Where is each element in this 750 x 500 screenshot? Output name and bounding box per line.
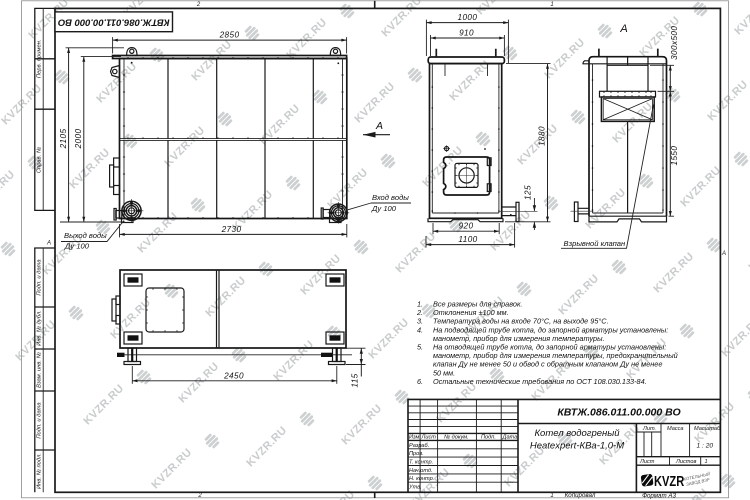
svg-text:Копировал: Копировал (565, 492, 596, 499)
svg-text:KVZR.RU: KVZR.RU (746, 228, 750, 273)
svg-text:KVZR.RU: KVZR.RU (0, 168, 17, 213)
svg-text:2000: 2000 (74, 129, 83, 150)
svg-text:KVZR.RU: KVZR.RU (719, 314, 750, 359)
svg-text:KVZR.RU: KVZR.RU (705, 78, 750, 123)
svg-text:2105: 2105 (59, 129, 68, 150)
svg-text:Лист: Лист (639, 459, 655, 465)
svg-text:Остальные технические требован: Остальные технические требования по ОСТ … (433, 377, 647, 386)
svg-text:KVZR.RU: KVZR.RU (176, 360, 221, 405)
svg-text:А: А (375, 120, 383, 132)
svg-text:910: 910 (459, 29, 474, 38)
svg-text:1100: 1100 (458, 235, 477, 244)
svg-text:Взам. инв. №: Взам. инв. № (37, 352, 43, 388)
svg-text:Взрывной клапан: Взрывной клапан (564, 239, 627, 248)
svg-text:Ду 100: Ду 100 (64, 242, 90, 251)
svg-text:№ докум.: № докум. (444, 435, 469, 441)
svg-text:Листов: Листов (675, 459, 696, 465)
svg-text:Инв. № дубл.: Инв. № дубл. (37, 310, 43, 346)
svg-text:Нач.отд.: Нач.отд. (409, 468, 433, 474)
svg-text:2: 2 (196, 2, 201, 8)
svg-text:КВТЖ.086.011.00.000 ВО: КВТЖ.086.011.00.000 ВО (57, 16, 169, 27)
svg-text:Выход воды: Выход воды (64, 231, 107, 240)
svg-text:Разраб.: Разраб. (409, 443, 429, 449)
svg-text:КВТЖ.086.011.00.000 ВО: КВТЖ.086.011.00.000 ВО (557, 406, 680, 418)
svg-text:Вход воды: Вход воды (372, 193, 409, 202)
svg-text:Котел водогреный: Котел водогреный (534, 428, 620, 439)
svg-text:920: 920 (459, 222, 474, 231)
svg-text:Heatexpert-КВа-1,0-М: Heatexpert-КВа-1,0-М (530, 441, 624, 452)
svg-text:KVZR.RU: KVZR.RU (298, 252, 343, 297)
svg-text:1880: 1880 (538, 126, 547, 146)
svg-text:2730: 2730 (221, 225, 242, 234)
svg-text:1550: 1550 (670, 146, 679, 166)
svg-text:Инв. № подл.: Инв. № подл. (37, 453, 43, 489)
svg-text:KVZR.RU: KVZR.RU (651, 250, 696, 295)
svg-text:Подп. и дата: Подп. и дата (37, 259, 43, 296)
svg-text:KVZR.RU: KVZR.RU (542, 36, 587, 81)
svg-text:4.: 4. (417, 325, 423, 334)
svg-text:Т. контр.: Т. контр. (409, 460, 433, 466)
svg-text:2850: 2850 (219, 30, 240, 39)
svg-text:KVZR: KVZR (654, 473, 685, 490)
svg-text:KVZR.RU: KVZR.RU (434, 380, 479, 425)
svg-text:KVZR.RU: KVZR.RU (678, 164, 723, 209)
svg-text:Масштаб: Масштаб (694, 426, 721, 432)
svg-text:2: 2 (197, 493, 202, 499)
svg-text:Утв.: Утв. (408, 485, 422, 491)
svg-text:Перв. примен.: Перв. примен. (37, 40, 43, 79)
svg-text:2450: 2450 (223, 371, 244, 380)
svg-text:1: 1 (550, 2, 553, 8)
svg-text:6.: 6. (417, 377, 423, 386)
svg-text:KVZR.RU: KVZR.RU (447, 58, 492, 103)
svg-text:KVZR.RU: KVZR.RU (149, 446, 194, 491)
svg-text:125: 125 (524, 185, 533, 200)
svg-text:KVZR.RU: KVZR.RU (81, 382, 126, 427)
svg-text:KVZR.RU: KVZR.RU (108, 296, 153, 341)
svg-text:KVZR.RU: KVZR.RU (189, 38, 234, 83)
svg-text:KVZR.RU: KVZR.RU (203, 274, 248, 319)
svg-text:Масса: Масса (667, 426, 684, 432)
svg-text:KVZR.RU: KVZR.RU (339, 402, 384, 447)
svg-text:KVZR.RU: KVZR.RU (556, 272, 601, 317)
svg-text:клапан Ду не менее 50 и обвод: клапан Ду не менее 50 и обвод с обратным… (433, 360, 662, 369)
svg-text:1 : 20: 1 : 20 (697, 442, 714, 449)
svg-text:Подп. и дата: Подп. и дата (37, 402, 43, 439)
svg-text:115: 115 (351, 373, 360, 387)
svg-text:300х500: 300х500 (670, 26, 679, 60)
svg-text:1: 1 (550, 493, 553, 499)
svg-text:1: 1 (705, 459, 708, 465)
svg-text:KVZR.RU: KVZR.RU (67, 146, 112, 191)
svg-text:Лит.: Лит. (642, 426, 656, 432)
svg-text:А: А (619, 23, 627, 35)
svg-text:А: А (721, 251, 726, 257)
svg-text:Справ. №: Справ. № (37, 147, 43, 173)
svg-text:1000: 1000 (457, 13, 477, 22)
svg-text:KVZR.RU: KVZR.RU (271, 338, 316, 383)
svg-text:KVZR.RU: KVZR.RU (352, 80, 397, 125)
svg-text:KVZR.RU: KVZR.RU (366, 316, 411, 361)
svg-text:KVZR.RU: KVZR.RU (325, 166, 370, 211)
svg-text:Лист: Лист (421, 435, 437, 441)
svg-text:Формат А3: Формат А3 (642, 493, 676, 500)
svg-text:Подп.: Подп. (481, 435, 496, 441)
svg-text:KVZR.RU: KVZR.RU (0, 82, 44, 127)
svg-text:KVZR.RU: KVZR.RU (583, 186, 628, 231)
svg-text:KVZR.RU: KVZR.RU (94, 60, 139, 105)
svg-text:KVZR.RU: KVZR.RU (732, 0, 750, 37)
svg-text:KVZR.RU: KVZR.RU (379, 0, 424, 39)
svg-text:Ду 100: Ду 100 (371, 204, 397, 213)
svg-text:Н. контр.: Н. контр. (409, 476, 434, 482)
svg-text:Изм.: Изм. (409, 435, 421, 441)
svg-text:KVZR.RU: KVZR.RU (284, 16, 329, 61)
svg-text:KVZR.RU: KVZR.RU (393, 230, 438, 275)
svg-text:5.: 5. (417, 343, 423, 352)
svg-text:KVZR.RU: KVZR.RU (312, 488, 357, 500)
svg-text:KVZR.RU: KVZR.RU (244, 424, 289, 469)
svg-text:А: А (46, 241, 51, 247)
svg-text:Пров.: Пров. (409, 451, 424, 457)
svg-text:KVZR.RU: KVZR.RU (162, 124, 207, 169)
svg-text:Дата: Дата (502, 435, 518, 441)
